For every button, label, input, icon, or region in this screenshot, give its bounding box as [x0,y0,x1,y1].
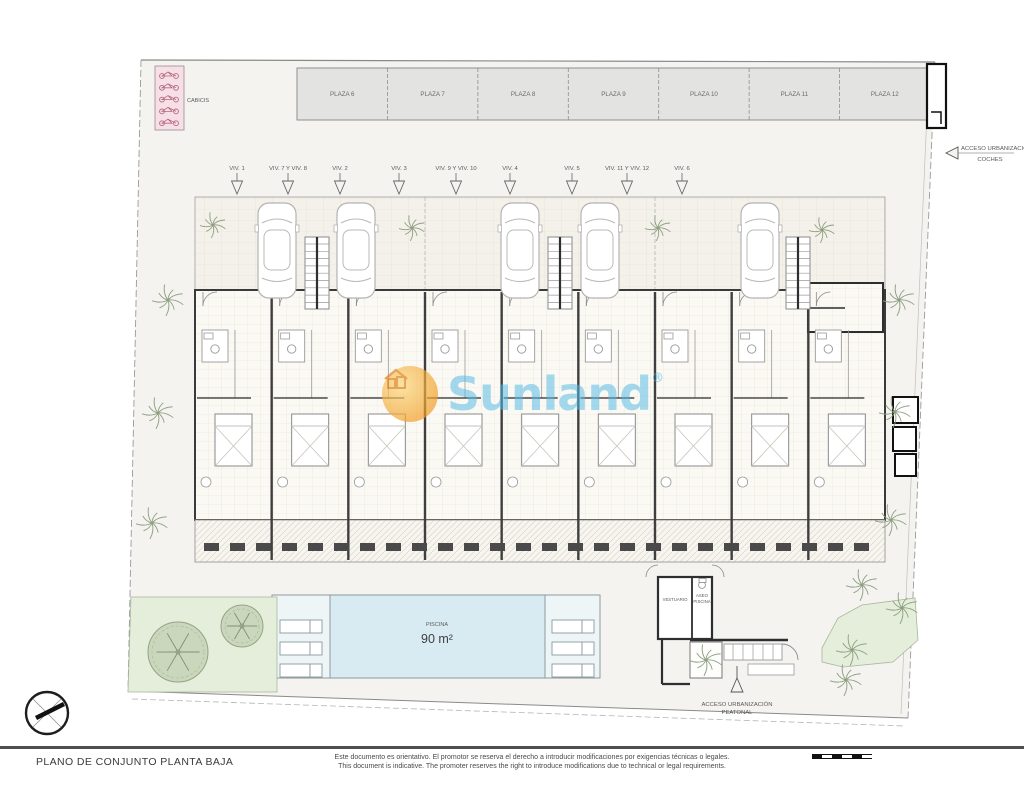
terrace-planter [516,543,531,551]
table-icon [201,477,211,487]
scale-bar-segment [832,754,842,759]
scale-bar-segment [812,754,822,759]
cars-arrow-head [946,147,958,159]
sun-lounger-pillow [310,664,322,677]
palm-center [861,584,864,587]
sink-icon [817,333,826,339]
terrace-planter [282,543,297,551]
scale-bar [812,754,872,759]
car-mirror [334,225,338,232]
scale-bar-segment [852,754,862,759]
unit-label: VIV. 9 Y VIV. 10 [435,166,477,172]
car-mirror [255,225,259,232]
bed [445,414,482,466]
unit-label: VIV. 11 Y VIV. 12 [605,166,649,172]
terrace-planter [620,543,635,551]
car-mirror [539,225,543,232]
unit-label: VIV. 7 Y VIV. 8 [269,166,308,172]
palm-center [167,299,170,302]
sun-lounger [552,620,582,633]
car-roof [507,230,533,270]
disclaimer-es: Este documento es orientativo. El promot… [232,753,832,762]
terrace-planter [828,543,843,551]
terrace-planter [776,543,791,551]
palm-center [890,519,893,522]
car-roof [747,230,773,270]
palm-center [851,649,854,652]
toilet-icon [517,345,525,353]
bed [368,414,405,466]
pool-area-label: 90 m² [421,632,453,646]
terrace-planter [256,543,271,551]
table-icon [738,477,748,487]
toilet-icon [594,345,602,353]
palm-center [151,522,154,525]
bed [675,414,712,466]
unit-label: VIV. 1 [229,166,245,172]
scale-bar-segment [822,754,832,759]
car-icon [498,203,542,298]
sink-icon [281,333,290,339]
terrace-planter [412,543,427,551]
vestuario-label: VESTUARIO [663,597,688,602]
terrace-planter [360,543,375,551]
toilet-icon [671,345,679,353]
sun-lounger [552,664,582,677]
terrace-planter [750,543,765,551]
sun-lounger [280,620,310,633]
sink-icon [434,333,443,339]
scale-bar-segment [862,754,872,759]
bed [292,414,329,466]
car-mirror [578,225,582,232]
palm-center [157,412,160,415]
plaza-label: PLAZA 8 [511,91,536,98]
terrace-planter [802,543,817,551]
unit-label: VIV. 3 [391,166,407,172]
table-icon [584,477,594,487]
car-mirror [738,225,742,232]
aseo-label-2: PISCINA [693,599,710,604]
plaza-label: PLAZA 6 [330,91,355,98]
table-icon [508,477,518,487]
sun-lounger-pillow [310,642,322,655]
sun-lounger [280,642,310,655]
plaza-label: PLAZA 9 [601,91,626,98]
table-icon [278,477,288,487]
terrace-planter [334,543,349,551]
terrace-planter [386,543,401,551]
sun-lounger-pillow [310,620,322,633]
sink-icon [587,333,596,339]
terrace-planter [308,543,323,551]
pedestrian-access-label-2: PEATONAL [722,710,754,716]
toilet-icon [287,345,295,353]
toilet-icon [441,345,449,353]
car-mirror [375,225,379,232]
car-icon [578,203,622,298]
toilet-icon [824,345,832,353]
sink-icon [204,333,213,339]
cars-access-label-2: COCHES [977,157,1002,163]
wall-section [893,427,916,451]
palm-center [901,607,904,610]
site-plan-canvas: PLAZA 6PLAZA 7PLAZA 8PLAZA 9PLAZA 10PLAZ… [0,0,1024,800]
tree-trunk [175,649,180,654]
sun-lounger-pillow [582,620,594,633]
title-block: PLANO DE CONJUNTO PLANTA BAJA Este docum… [0,746,1024,800]
palm-center [411,227,414,230]
table-icon [354,477,364,487]
bed [215,414,252,466]
toilet-icon [364,345,372,353]
cistern-icon [699,579,706,583]
toilet-icon [211,345,219,353]
sink-icon [741,333,750,339]
sink-icon [511,333,520,339]
plaza-label: PLAZA 11 [781,91,809,98]
car-mirror [498,225,502,232]
entrance-platform [748,664,794,675]
disclaimer-en: This document is indicative. The promote… [232,762,832,771]
palm-center [894,411,897,414]
table-icon [661,477,671,487]
terrace-planter [490,543,505,551]
disclaimer: Este documento es orientativo. El promot… [232,753,832,771]
plaza-label: PLAZA 7 [420,91,445,98]
sink-icon [357,333,366,339]
aseo-label-1: ASEO [696,593,709,598]
bed [828,414,865,466]
wall-section [895,454,916,476]
terrace-planter [672,543,687,551]
car-mirror [779,225,783,232]
terrace-planter [464,543,479,551]
cars-access-label-1: ACCESO URBANIZACIÓN [961,145,1024,152]
terrace-planter [698,543,713,551]
plaza-label: PLAZA 12 [871,91,899,98]
palm-center [821,229,824,232]
terrace-planter [230,543,245,551]
car-icon [738,203,782,298]
dwellings-block [195,290,885,520]
tree-trunk [239,623,244,628]
table-icon [814,477,824,487]
car-roof [587,230,613,270]
palm-center [898,299,901,302]
unit-label: VIV. 4 [502,166,518,172]
site-plan-drawing: PLAZA 6PLAZA 7PLAZA 8PLAZA 9PLAZA 10PLAZ… [0,0,1024,800]
unit-label: VIV. 2 [332,166,348,172]
car-roof [264,230,290,270]
sun-lounger-pillow [582,664,594,677]
palm-center [705,659,708,662]
sink-icon [664,333,673,339]
car-mirror [296,225,300,232]
terrace-band [195,520,885,562]
drawing-title: PLANO DE CONJUNTO PLANTA BAJA [36,756,233,768]
palm-center [657,227,660,230]
unit-label: VIV. 6 [674,166,690,172]
wall-section [927,64,946,128]
bed [598,414,635,466]
car-mirror [619,225,623,232]
scale-bar-segment [842,754,852,759]
table-icon [431,477,441,487]
garage-band [195,197,885,290]
plaza-label: PLAZA 10 [690,91,718,98]
bed [522,414,559,466]
terrace-planter [854,543,869,551]
terrace-planter [204,543,219,551]
bed [752,414,789,466]
pedestrian-access-label-1: ACCESO URBANIZACIÓN [701,701,772,708]
sun-lounger-pillow [582,642,594,655]
terrace-planter [568,543,583,551]
terrace-planter [594,543,609,551]
pool-label: PISCINA [426,622,448,628]
unit-label: VIV. 5 [564,166,580,172]
palm-center [845,679,848,682]
sun-lounger [280,664,310,677]
car-icon [255,203,299,298]
car-roof [343,230,369,270]
bike-shelter-label: CABICIS [187,98,209,104]
terrace-planter [724,543,739,551]
toilet-icon [747,345,755,353]
terrace-planter [542,543,557,551]
palm-center [212,224,215,227]
terrace-planter [438,543,453,551]
car-icon [334,203,378,298]
terrace-planter [646,543,661,551]
sun-lounger [552,642,582,655]
